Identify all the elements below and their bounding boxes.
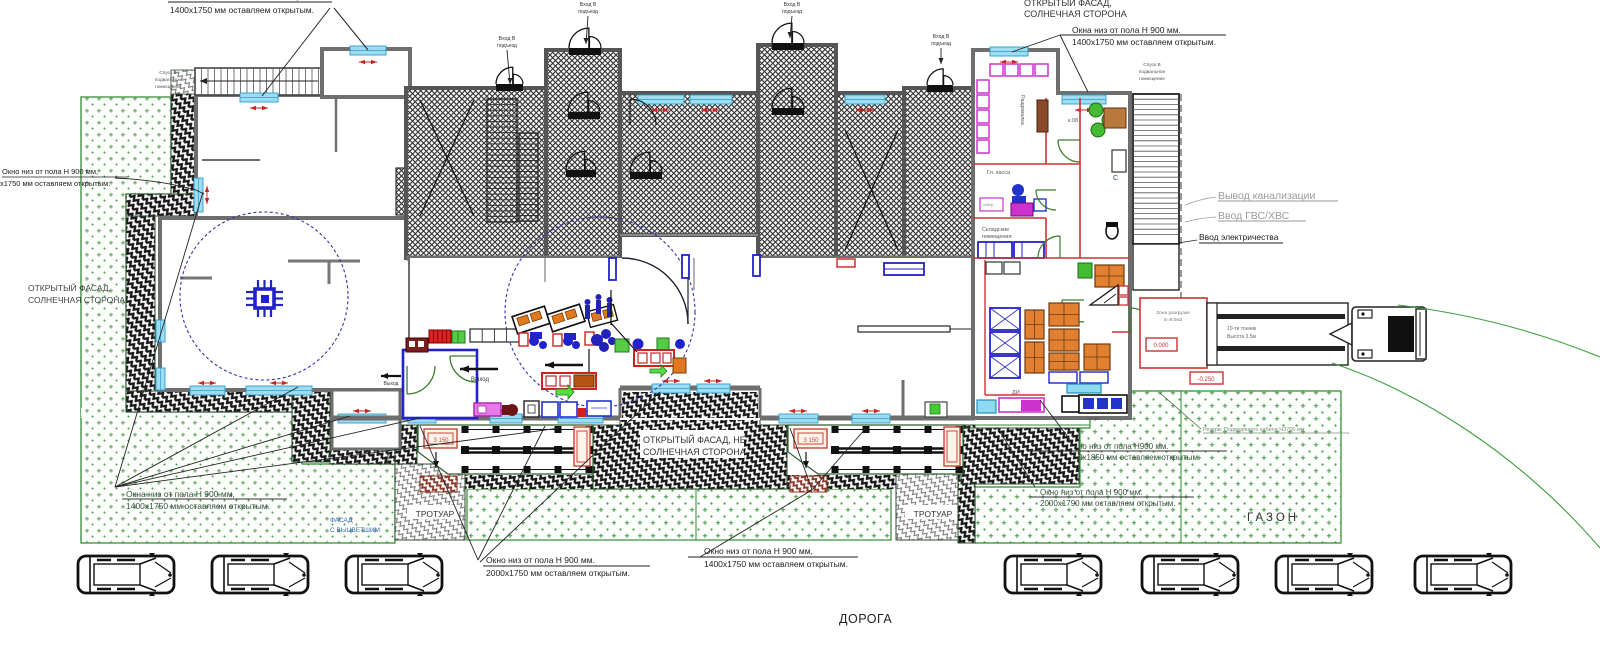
svg-text:ТРОТУАР: ТРОТУАР [416, 509, 455, 519]
svg-text:подъезд: подъезд [578, 9, 598, 15]
svg-text:Выход: Выход [384, 381, 399, 387]
svg-text:-0.250: -0.250 [1197, 377, 1215, 383]
svg-text:Окно низ от пола Н 900 мм,: Окно низ от пола Н 900 мм, [704, 546, 813, 556]
svg-text:ФАСАД: ФАСАД [330, 517, 353, 524]
svg-text:Раздевалка: Раздевалка [1019, 95, 1025, 126]
svg-text:С: С [1113, 175, 1118, 182]
svg-text:подъезд: подъезд [931, 41, 951, 47]
svg-text:1400х1750 мм оставляем открыты: 1400х1750 мм оставляем открытым. [126, 501, 270, 511]
svg-text:СОЛНЕЧНАЯ СТОРОНА: СОЛНЕЧНАЯ СТОРОНА [643, 447, 746, 457]
svg-text:подъезд: подъезд [782, 9, 802, 15]
svg-text:Вход В: Вход В [933, 34, 950, 40]
svg-text:Зона разгрузки: Зона разгрузки [1156, 310, 1190, 316]
svg-text:Вход В: Вход В [499, 36, 516, 42]
svg-text:помещение: помещение [1139, 77, 1165, 82]
svg-text:Спуск В: Спуск В [1143, 62, 1160, 68]
svg-text:2000х1750 мм оставляем открыты: 2000х1750 мм оставляем открытым. [486, 568, 630, 578]
svg-text:S=9.0м2: S=9.0м2 [1164, 317, 1183, 323]
svg-text:Окно низ от пола Н 900 мм.: Окно низ от пола Н 900 мм. [1040, 488, 1143, 497]
svg-text:ДИ: ДИ [1012, 390, 1020, 396]
svg-text:Окно низ от пола Н 900 мм,: Окно низ от пола Н 900 мм, [2, 167, 98, 176]
svg-text:помещения: помещения [982, 234, 1012, 240]
svg-text:х1750 мм оставляем открытым.: х1750 мм оставляем открытым. [0, 179, 110, 188]
svg-text:Вход В: Вход В [580, 2, 597, 8]
svg-text:Высота 3.5м: Высота 3.5м [1227, 334, 1257, 340]
svg-text:2000х1790 мм оставляем открыты: 2000х1790 мм оставляем открытым. [1040, 499, 1176, 508]
svg-text:ДОРОГА: ДОРОГА [839, 612, 892, 626]
svg-text:3 150: 3 150 [803, 438, 819, 444]
svg-text:Складские: Складские [982, 227, 1009, 233]
svg-text:0.000: 0.000 [1153, 343, 1169, 349]
svg-text:10-ти тонник: 10-ти тонник [1227, 326, 1257, 332]
svg-text:ГАЗОН: ГАЗОН [1247, 512, 1299, 524]
svg-text:ОТКРЫТЫЙ ФАСАД,: ОТКРЫТЫЙ ФАСАД, [1024, 0, 1112, 8]
svg-text:0х1850 мм оставляем открытым.: 0х1850 мм оставляем открытым. [1078, 453, 1200, 462]
svg-text:ШОМ: ШОМ [1087, 416, 1099, 421]
svg-text:1400х1750 мм оставляем открыты: 1400х1750 мм оставляем открытым. [1072, 37, 1216, 47]
svg-text:С ВЫЦВЕТШИМ: С ВЫЦВЕТШИМ [330, 527, 380, 534]
svg-text:Вывод канализации: Вывод канализации [1218, 190, 1315, 202]
svg-text:к.08: к.08 [1068, 118, 1078, 124]
svg-text:сейф: сейф [983, 202, 993, 207]
svg-text:Окна низ от пола Н 900 мм.: Окна низ от пола Н 900 мм. [1072, 25, 1181, 35]
svg-text:подвальное: подвальное [1139, 70, 1166, 75]
svg-text:подвальное: подвальное [155, 78, 182, 83]
svg-text:Окно низ от пола Н 900 мм.: Окно низ от пола Н 900 мм. [486, 555, 595, 565]
svg-text:но низ от пола Н900 мм.: но низ от пола Н900 мм. [1078, 442, 1169, 451]
svg-text:помещение: помещение [155, 85, 181, 90]
svg-text:Резерв. Подводящего кабеля Н37: Резерв. Подводящего кабеля Н3700 мм [1203, 427, 1305, 433]
svg-text:ОТКРЫТЫЙ ФАСАД, НЕ: ОТКРЫТЫЙ ФАСАД, НЕ [643, 434, 746, 445]
svg-text:1400х1750 мм оставляем открыты: 1400х1750 мм оставляем открытым. [170, 5, 314, 15]
svg-text:СОЛНЕЧНАЯ СТОРОНА: СОЛНЕЧНАЯ СТОРОНА [28, 295, 125, 305]
svg-text:Спуск В: Спуск В [159, 70, 176, 76]
svg-text:ТРОТУАР: ТРОТУАР [914, 509, 953, 519]
svg-text:Ввод электричества: Ввод электричества [1199, 232, 1279, 242]
svg-text:Окна низ от пола Н 900 мм,: Окна низ от пола Н 900 мм, [126, 489, 235, 499]
svg-text:Ввод ГВС/ХВС: Ввод ГВС/ХВС [1218, 210, 1290, 222]
svg-text:Вход В: Вход В [784, 2, 801, 8]
svg-text:подъезд: подъезд [497, 43, 517, 49]
svg-text:1400х1750 мм оставляем открыты: 1400х1750 мм оставляем открытым. [704, 559, 848, 569]
svg-text:Выход: Выход [471, 377, 489, 383]
svg-text:ОТКРЫТЫЙ ФАСАД,: ОТКРЫТЫЙ ФАСАД, [28, 282, 111, 293]
svg-text:Гл. касса: Гл. касса [987, 170, 1011, 176]
svg-text:СОЛНЕЧНАЯ СТОРОНА: СОЛНЕЧНАЯ СТОРОНА [1024, 9, 1127, 19]
